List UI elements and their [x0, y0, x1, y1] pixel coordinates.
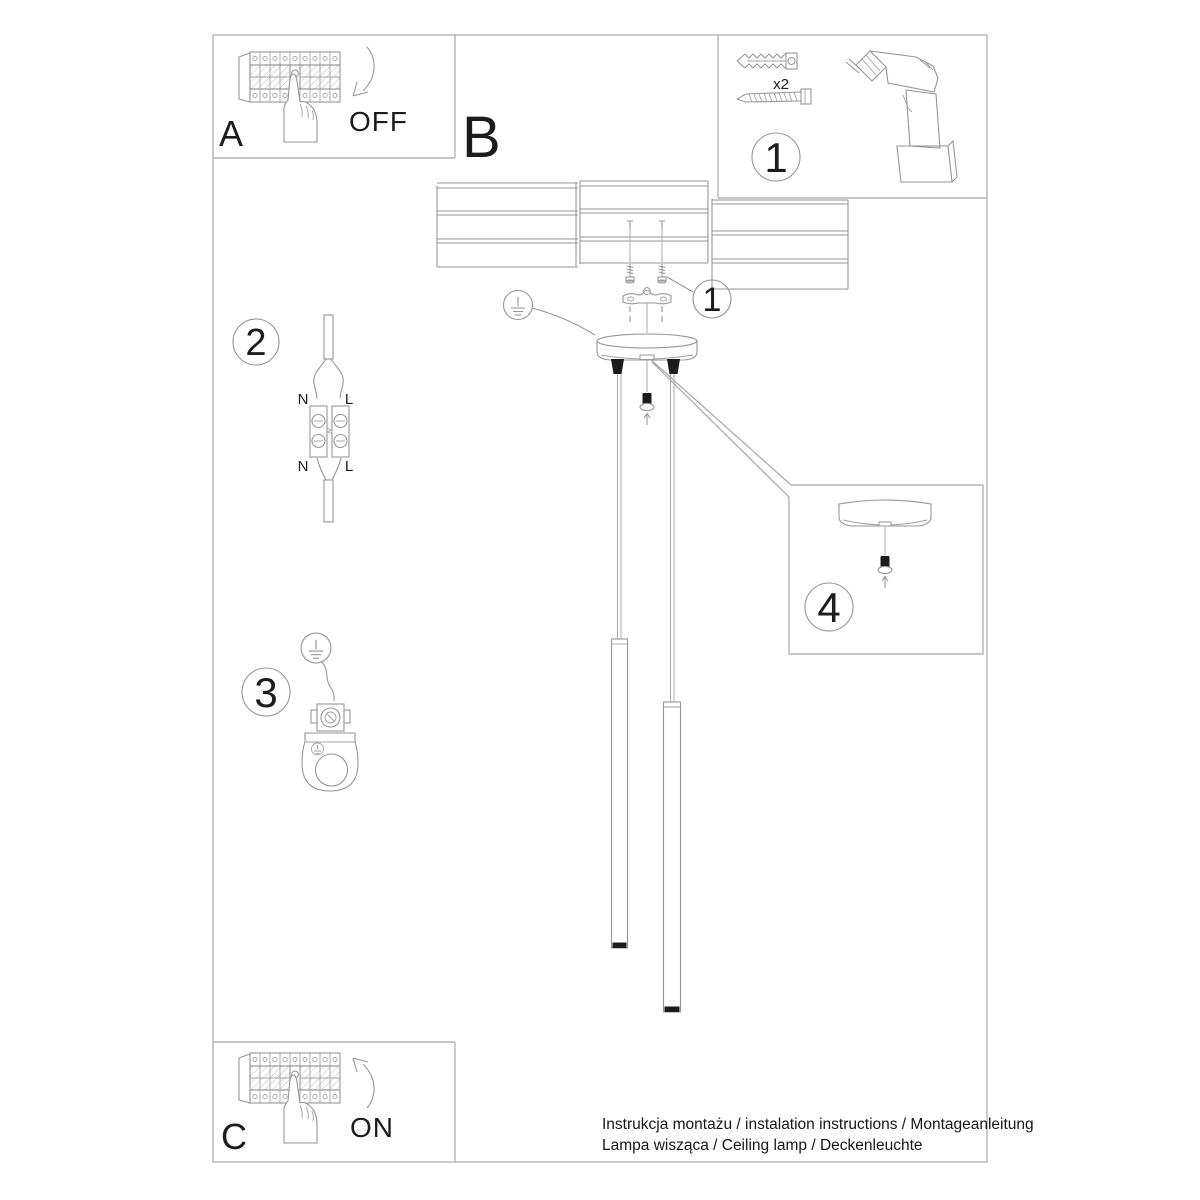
step3-panel: 3 [242, 633, 358, 791]
step2-badge: 2 [233, 319, 279, 365]
circuit-breaker-icon [239, 52, 340, 142]
panel-a: OFF A [219, 47, 408, 154]
screw-tip-right-icon [659, 221, 665, 228]
ceiling-icon [437, 181, 848, 289]
footer: Instrukcja montażu / instalation instruc… [602, 1116, 1034, 1154]
off-label: OFF [349, 106, 408, 137]
panel-a-label: A [219, 113, 243, 154]
panel-c-box [213, 1042, 455, 1162]
drill-icon [846, 51, 957, 182]
step2-number: 2 [245, 322, 266, 364]
arrow-up-icon [353, 1058, 374, 1108]
suspension-cord-left [618, 374, 622, 639]
terminal-n-out-label: N [298, 458, 309, 475]
lamp-cable-icon [317, 458, 341, 522]
page-frame [213, 35, 987, 1162]
ground-symbol-icon [504, 291, 533, 320]
step1-panel: x2 1 [737, 51, 957, 182]
arrow-down-icon [353, 47, 374, 96]
pendant-tube-left-icon [612, 639, 628, 948]
on-label: ON [350, 1112, 394, 1143]
callout-leader [667, 277, 693, 292]
ground-terminal-icon [311, 704, 350, 731]
suspension-cord-right [671, 374, 675, 702]
screw-tip-left-icon [627, 221, 633, 228]
step1-number: 1 [764, 134, 787, 181]
ground-symbol-icon-2 [301, 633, 331, 663]
mounting-screw-right-icon [658, 264, 666, 283]
supply-cable-icon [314, 315, 344, 398]
step4-badge: 4 [805, 583, 853, 631]
earth-callout [504, 291, 596, 336]
step4-canopy-icon [839, 500, 931, 526]
step4-cord-lock-icon [878, 527, 892, 588]
cord-grip-left-icon [611, 359, 624, 374]
anchor-qty-label: x2 [773, 76, 789, 93]
instruction-sheet: OFF A x2 [0, 0, 1200, 1200]
ground-wire-icon [321, 661, 334, 701]
instruction-drawing: OFF A x2 [0, 0, 1200, 1200]
pendant-tube-right-icon [664, 702, 681, 1012]
terminal-l-out-label: L [345, 458, 353, 475]
mounting-plate-icon [302, 733, 358, 791]
step2-panel: 2 N L N L [233, 315, 353, 522]
terminal-n-in-label: N [298, 391, 309, 408]
step3-badge: 3 [242, 668, 290, 716]
panel-c-label: C [221, 1116, 247, 1157]
wall-plug-icon [737, 53, 797, 69]
footer-line2: Lampa wisząca / Ceiling lamp / Deckenleu… [602, 1137, 923, 1154]
circuit-breaker-icon-2 [239, 1053, 340, 1143]
step1-callout-badge: 1 [667, 277, 731, 319]
footer-line1: Instrukcja montażu / instalation instruc… [602, 1116, 1034, 1133]
canopy-top [597, 334, 697, 348]
step3-number: 3 [254, 669, 277, 716]
canopy-center-hole [640, 355, 654, 360]
outer-border [213, 35, 987, 1162]
panel-c: ON C [221, 1053, 394, 1157]
step1-callout-number: 1 [703, 281, 722, 319]
earth-leader [532, 308, 595, 335]
mounting-screw-left-icon [626, 264, 634, 283]
cord-grip-right-icon [667, 359, 680, 374]
terminal-block-icon [310, 406, 349, 457]
step4-panel: 4 [650, 359, 983, 654]
cord-lock-detail [640, 360, 654, 425]
panel-b-label: B [462, 105, 501, 170]
step1-badge: 1 [752, 133, 800, 181]
step4-number: 4 [817, 584, 840, 631]
